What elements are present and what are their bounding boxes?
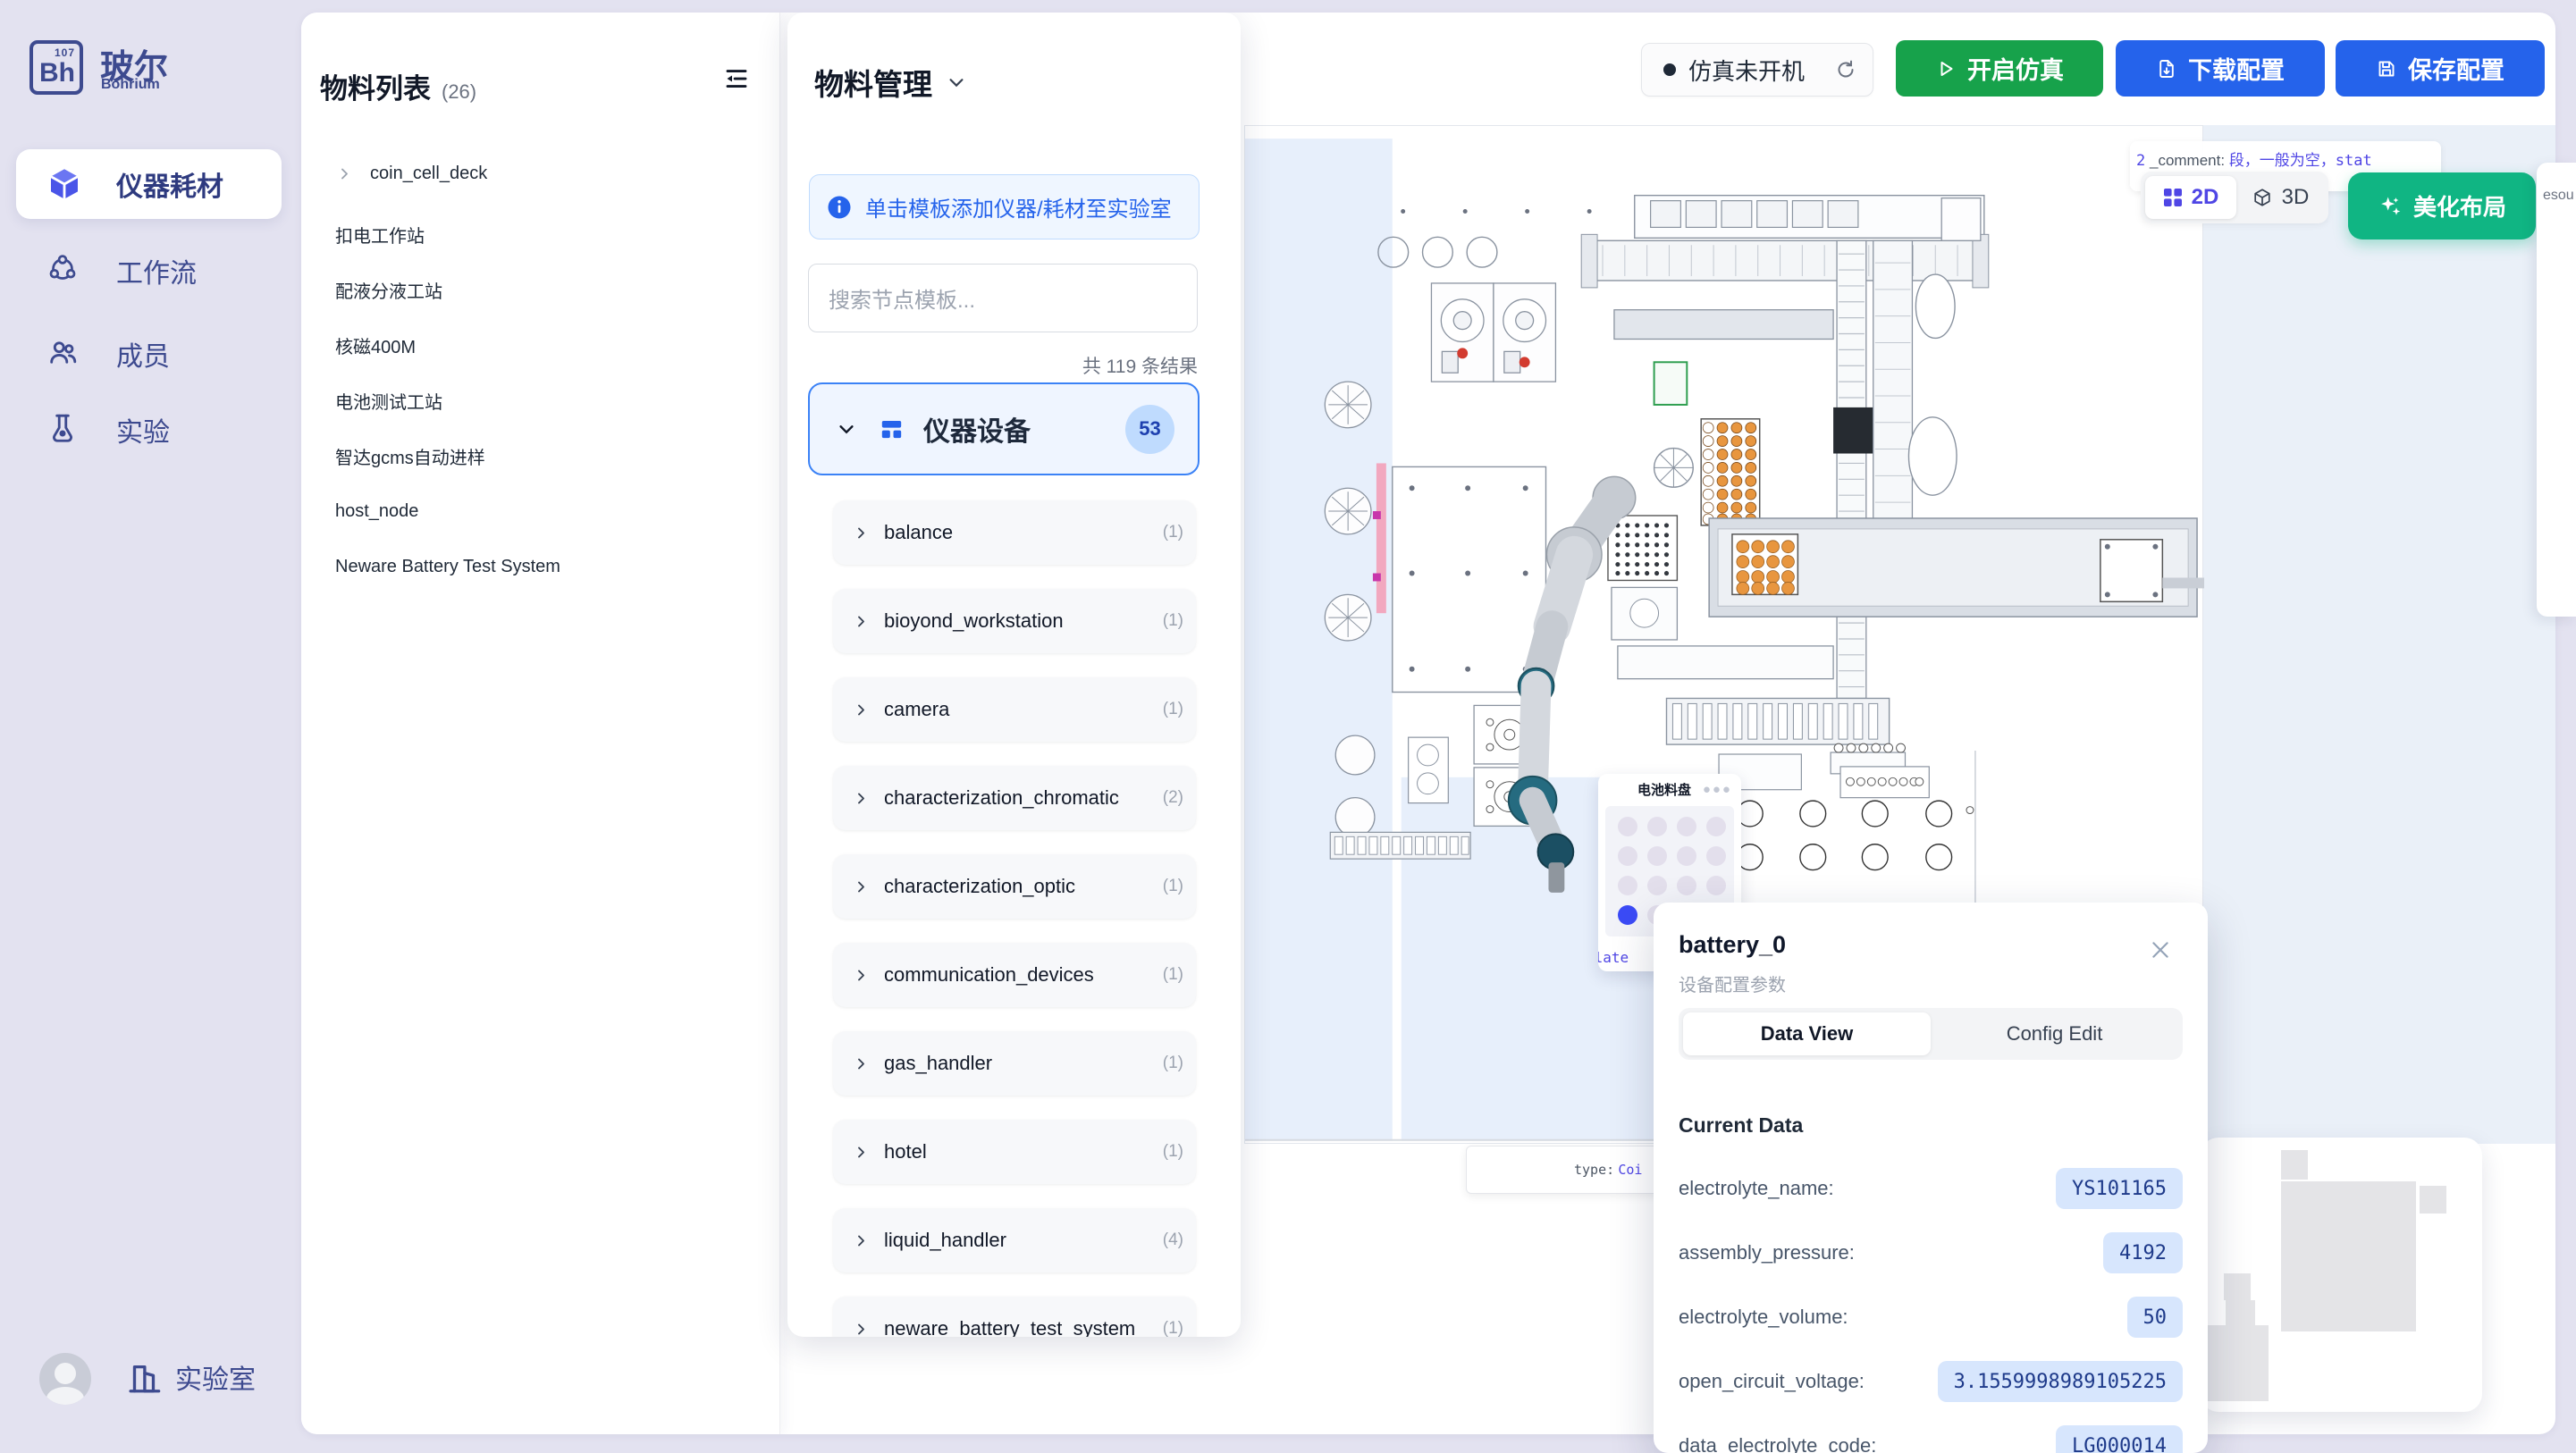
data-row-label: electrolyte_name:: [1679, 1177, 1834, 1200]
sidebar-item-label: 仪器耗材: [116, 164, 223, 204]
material-item-label: 核磁400M: [335, 332, 416, 358]
template-item-gas_handler[interactable]: gas_handler(1): [833, 1031, 1196, 1096]
toggle-3d-label: 3D: [2282, 185, 2310, 210]
material-item[interactable]: Neware Battery Test System: [301, 542, 780, 592]
template-count: (1): [1163, 1142, 1183, 1162]
template-name: camera: [884, 698, 949, 721]
data-row: electrolyte_volume:50: [1679, 1296, 2183, 1339]
info-icon: [826, 194, 853, 221]
data-row: assembly_pressure:4192: [1679, 1231, 2183, 1274]
lab-building-icon: [125, 1358, 163, 1396]
members-icon: [46, 336, 82, 372]
data-row-value: YS101165: [2056, 1168, 2183, 1209]
results-count: 共 119 条结果: [1082, 352, 1198, 379]
toggle-3d[interactable]: 3D: [2236, 176, 2324, 219]
tray-slot[interactable]: [1618, 876, 1637, 895]
status-dot-icon: [1663, 63, 1676, 76]
download-config-button[interactable]: 下载配置: [2116, 40, 2325, 97]
sidebar-item-label: 成员: [116, 334, 170, 374]
page-title: 物料管理: [814, 61, 932, 104]
canvas-empty-zone[interactable]: [2203, 125, 2555, 1144]
chevron-right-icon[interactable]: [854, 1057, 868, 1071]
chevron-down-icon[interactable]: [947, 72, 966, 92]
beautify-layout-label: 美化布局: [2413, 189, 2506, 223]
template-count: (1): [1163, 523, 1183, 542]
experiment-icon: [46, 412, 82, 448]
chevron-right-icon[interactable]: [854, 526, 868, 540]
save-config-label: 保存配置: [2408, 51, 2504, 86]
material-item-label: 配液分液工站: [335, 277, 442, 303]
tab-data-view[interactable]: Data View: [1683, 1012, 1931, 1055]
materials-panel: 物料列表(26) coin_cell_deck扣电工作站配液分液工站核磁400M…: [301, 13, 780, 1434]
workflow-icon: [46, 253, 82, 289]
type-value: Coi: [1618, 1162, 1642, 1178]
template-count: (1): [1163, 1319, 1183, 1337]
cube-icon: [46, 166, 82, 202]
material-item-label: Neware Battery Test System: [335, 557, 560, 577]
material-item[interactable]: 配液分液工站: [301, 265, 780, 315]
material-item[interactable]: host_node: [301, 486, 780, 536]
sidebar-item-label: 工作流: [116, 251, 197, 290]
template-item-characterization_optic[interactable]: characterization_optic(1): [833, 854, 1196, 919]
tray-slot[interactable]: [1677, 817, 1696, 836]
tray-slot[interactable]: [1647, 846, 1667, 866]
template-item-hotel[interactable]: hotel(1): [833, 1120, 1196, 1184]
template-name: communication_devices: [884, 963, 1094, 987]
chevron-down-icon: [837, 419, 856, 439]
logo-number: 107: [55, 46, 75, 59]
lab-label: 实验室: [175, 1357, 256, 1397]
tray-slot[interactable]: [1647, 817, 1667, 836]
sidebar-item-label: 实验: [116, 410, 170, 449]
template-item-balance[interactable]: balance(1): [833, 500, 1196, 565]
template-item-communication_devices[interactable]: communication_devices(1): [833, 943, 1196, 1007]
chevron-right-icon[interactable]: [854, 1146, 868, 1159]
toggle-2d[interactable]: 2D: [2145, 176, 2236, 219]
chevron-right-icon[interactable]: [854, 1323, 868, 1336]
start-simulation-button[interactable]: 开启仿真: [1896, 40, 2103, 97]
plate-label: Plate: [1598, 949, 1629, 966]
search-placeholder: 搜索节点模板...: [829, 282, 975, 314]
data-row-label: electrolyte_volume:: [1679, 1306, 1848, 1329]
tray-slot[interactable]: [1618, 817, 1637, 836]
toggle-2d-label: 2D: [2192, 185, 2219, 210]
tray-slot[interactable]: [1647, 876, 1667, 895]
sidebar-item-workflow[interactable]: 工作流: [16, 241, 282, 300]
material-item-label: host_node: [335, 501, 418, 522]
data-row-label: data_electrolyte_code:: [1679, 1434, 1876, 1453]
popup-subtitle: 设备配置参数: [1679, 970, 1786, 996]
data-row-value: 3.1559998989105225: [1938, 1361, 2183, 1402]
more-options-icon[interactable]: ●●●: [1703, 782, 1732, 797]
chevron-right-icon[interactable]: [854, 792, 868, 805]
refresh-icon[interactable]: [1835, 59, 1856, 80]
tab-config-edit[interactable]: Config Edit: [1931, 1012, 2178, 1055]
workspace-card: 仿真未开机 开启仿真 下载配置 保存配置 2 _com: [301, 13, 2555, 1434]
comment-key: _comment:: [2150, 152, 2225, 169]
template-panel: 物料管理 单击模板添加仪器/耗材至实验室 搜索节点模板... 共 119 条结果…: [787, 13, 1241, 1337]
template-name: hotel: [884, 1140, 927, 1163]
template-name: liquid_handler: [884, 1229, 1006, 1252]
sidebar-item-experiments[interactable]: 实验: [16, 400, 282, 459]
chevron-right-icon[interactable]: [854, 880, 868, 894]
data-row-label: open_circuit_voltage:: [1679, 1370, 1865, 1393]
material-item[interactable]: coin_cell_deck: [301, 148, 780, 198]
template-count: (1): [1163, 1054, 1183, 1073]
close-icon[interactable]: [2149, 938, 2172, 962]
save-config-button[interactable]: 保存配置: [2336, 40, 2545, 97]
material-item[interactable]: 电池测试工站: [301, 375, 780, 425]
view-mode-toggle: 2D 3D: [2141, 172, 2328, 223]
template-count: (4): [1163, 1230, 1183, 1250]
tray-slot-selected[interactable]: [1618, 905, 1637, 925]
status-label: 仿真未开机: [1688, 54, 1805, 87]
template-count: (1): [1163, 700, 1183, 719]
template-name: characterization_optic: [884, 875, 1075, 898]
search-input[interactable]: 搜索节点模板...: [808, 264, 1198, 332]
template-item-camera[interactable]: camera(1): [833, 677, 1196, 742]
sidebar-item-lab[interactable]: 实验室: [125, 1357, 256, 1397]
data-row: electrolyte_name:YS101165: [1679, 1167, 2183, 1210]
info-banner: 单击模板添加仪器/耗材至实验室: [809, 174, 1200, 239]
popup-tabs: Data ViewConfig Edit: [1679, 1008, 2183, 1060]
material-item[interactable]: 核磁400M: [301, 320, 780, 370]
template-count: (1): [1163, 877, 1183, 896]
app-root: { "sidebar": { "logo": { "element": "Bh"…: [0, 0, 2576, 1453]
beautify-layout-button[interactable]: 美化布局: [2348, 172, 2536, 239]
simulation-status[interactable]: 仿真未开机: [1641, 43, 1873, 97]
instrument-grid-icon: [880, 417, 904, 441]
user-avatar[interactable]: [39, 1353, 91, 1405]
start-simulation-label: 开启仿真: [1967, 51, 2064, 86]
logo-symbol: Bh: [39, 58, 75, 88]
template-count: (1): [1163, 965, 1183, 985]
template-name: bioyond_workstation: [884, 609, 1064, 633]
template-name: characterization_chromatic: [884, 786, 1119, 810]
comment-value: 段，一般为空，stat: [2229, 152, 2372, 170]
tray-slot[interactable]: [1706, 817, 1726, 836]
device-config-popup: battery_0 设备配置参数 Data ViewConfig Edit Cu…: [1654, 903, 2208, 1453]
tray-slot[interactable]: [1706, 846, 1726, 866]
side-peek-text: esou: [2543, 188, 2574, 204]
chevron-right-icon[interactable]: [854, 1234, 868, 1247]
template-item-neware_battery_test_system[interactable]: neware_battery_test_system(1): [833, 1297, 1196, 1337]
material-item[interactable]: 扣电工作站: [301, 209, 780, 259]
template-item-characterization_chromatic[interactable]: characterization_chromatic(2): [833, 766, 1196, 830]
grid-2d-icon: [2163, 188, 2183, 207]
template-name: gas_handler: [884, 1052, 992, 1075]
tray-slot[interactable]: [1677, 846, 1696, 866]
data-row-value: 50: [2127, 1297, 2184, 1338]
chevron-right-icon[interactable]: [854, 969, 868, 982]
template-item-liquid_handler[interactable]: liquid_handler(4): [833, 1208, 1196, 1272]
comment-prefix: 2: [2136, 152, 2145, 170]
type-key: type:: [1574, 1162, 1614, 1178]
data-row: data_electrolyte_code:LG000014: [1679, 1424, 2183, 1453]
layout-minimap[interactable]: [2201, 1138, 2482, 1412]
category-instruments[interactable]: 仪器设备 53: [808, 382, 1200, 475]
chevron-right-icon[interactable]: [854, 703, 868, 717]
materials-count: (26): [442, 80, 476, 103]
material-item[interactable]: 智达gcms自动进样: [301, 431, 780, 481]
sparkles-icon: [2378, 194, 2403, 219]
template-item-bioyond_workstation[interactable]: bioyond_workstation(1): [833, 589, 1196, 653]
tray-slot[interactable]: [1706, 876, 1726, 895]
collapse-list-icon[interactable]: [723, 65, 750, 92]
sidebar: 107 Bh 玻尔 Bohrium 仪器耗材工作流成员实验 实验室: [0, 0, 301, 1453]
download-config-label: 下载配置: [2188, 51, 2285, 86]
template-name: balance: [884, 521, 953, 544]
bohrium-logo-icon: 107 Bh: [29, 40, 83, 95]
material-item-label: 智达gcms自动进样: [335, 443, 485, 469]
play-icon: [1935, 58, 1957, 80]
template-count: (2): [1163, 788, 1183, 808]
material-item-label: 电池测试工站: [335, 388, 442, 414]
side-peek-panel[interactable]: esou: [2537, 163, 2576, 617]
category-label: 仪器设备: [923, 409, 1031, 449]
category-count-badge: 53: [1125, 405, 1174, 454]
data-row-value: 4192: [2103, 1232, 2183, 1273]
cube-3d-icon: [2252, 187, 2273, 208]
chevron-right-icon[interactable]: [338, 167, 351, 181]
info-banner-text: 单击模板添加仪器/耗材至实验室: [865, 191, 1172, 223]
material-item-label: 扣电工作站: [335, 222, 425, 248]
materials-title: 物料列表(26): [320, 66, 476, 106]
download-file-icon: [2156, 58, 2177, 80]
sidebar-item-instruments[interactable]: 仪器耗材: [16, 149, 282, 219]
tray-slot[interactable]: [1677, 876, 1696, 895]
template-name: neware_battery_test_system: [884, 1317, 1135, 1337]
logo-subtitle: Bohrium: [101, 77, 160, 93]
data-row-value: LG000014: [2056, 1425, 2183, 1453]
battery-tray-title: 电池料盘: [1637, 780, 1691, 799]
template-count: (1): [1163, 611, 1183, 631]
save-icon: [2376, 58, 2397, 80]
current-data-heading: Current Data: [1679, 1113, 1803, 1138]
popup-title: battery_0: [1679, 931, 1786, 959]
chevron-right-icon[interactable]: [854, 615, 868, 628]
data-row-label: assembly_pressure:: [1679, 1241, 1855, 1264]
tray-slot[interactable]: [1618, 846, 1637, 866]
sidebar-item-members[interactable]: 成员: [16, 324, 282, 383]
material-item-label: coin_cell_deck: [370, 164, 487, 184]
data-row: open_circuit_voltage:3.1559998989105225: [1679, 1360, 2183, 1403]
